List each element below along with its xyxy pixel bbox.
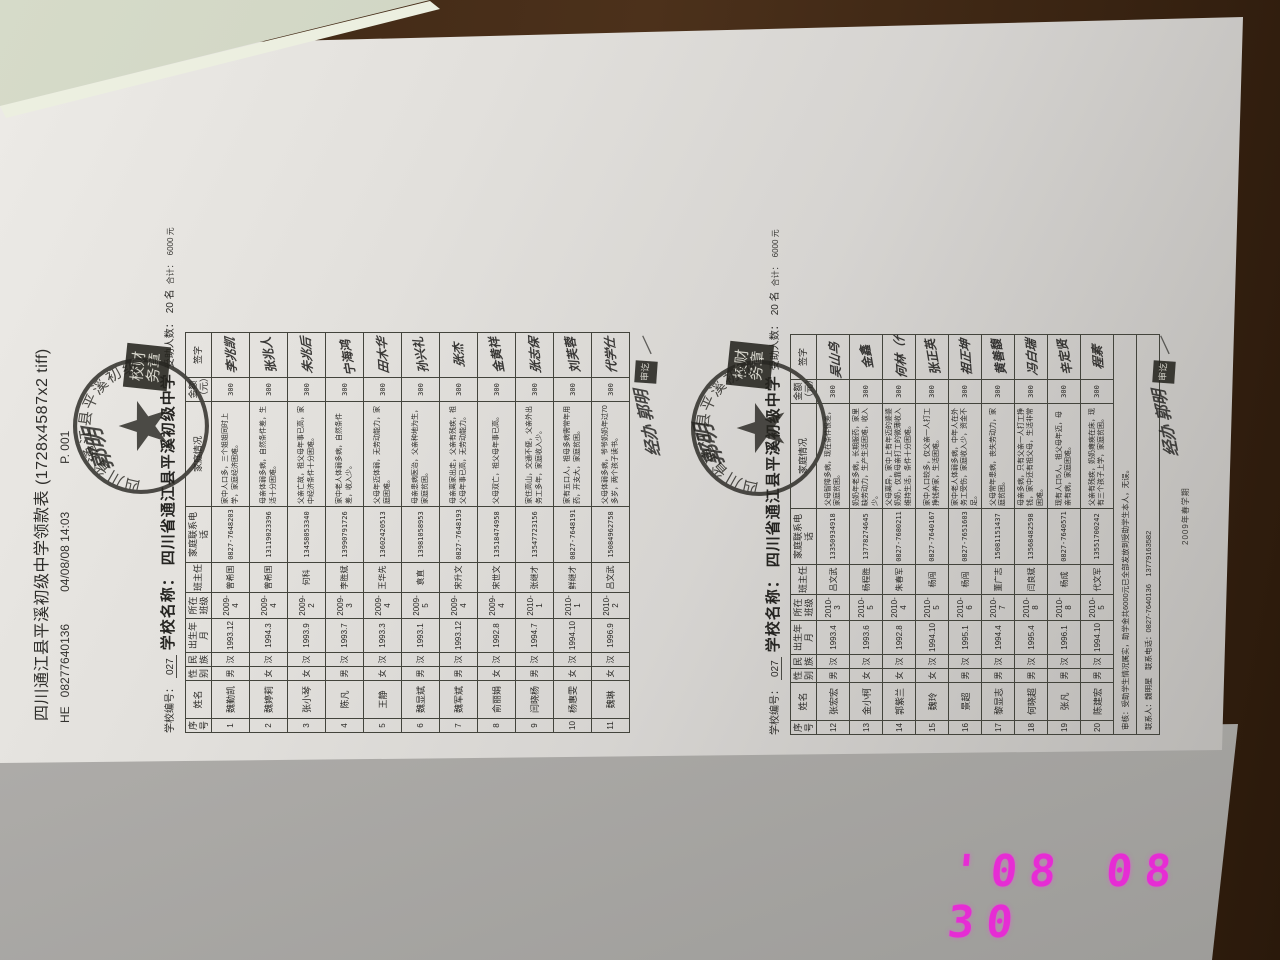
cell-klass: 2009-5 [402,593,440,619]
column-header: 家庭情况 [791,404,817,509]
cell-phone: 13990791726 [326,507,364,563]
cell-phone: 0827-7680211 [883,509,916,565]
photo-scene: 四川通江县平溪初级中学领款表 (1728x4587x2 tiff) HE 082… [0,0,1280,960]
pen-stroke: — [631,331,660,359]
cell-ethnic: 汉 [478,653,516,667]
cell-no: 8 [478,719,516,733]
cell-klass: 2010-8 [1048,595,1081,621]
cell-amount: 300 [288,378,326,402]
cell-signature: 朱兆后 [288,333,326,378]
cell-klass: 2010-5 [850,595,883,621]
cell-ethnic: 汉 [1015,655,1048,669]
cell-klass: 2010-5 [916,595,949,621]
column-header: 性别 [791,669,817,683]
cell-amount: 300 [592,378,630,402]
signature-handwriting: 祖正坤 [955,338,975,376]
cell-signature: 李兆凯 [212,333,250,378]
cell-phone: 0827-7640571 [1048,509,1081,565]
cell-amount: 300 [1048,380,1081,404]
table-row: 16景超男汉1995.12010-6杨闯0827-7651603家中老人体弱多病… [949,335,982,735]
cell-name: 魏婷莉 [250,681,288,719]
rectangular-seal-stamp: 校财务章 [726,341,774,389]
cell-signature: 张志保 [516,333,554,378]
table1-header-line: 学校编号：027 学校名称：四川省通江县平溪初级中学 受助人数：20 名 合计：… [157,227,178,733]
cell-sex: 男 [1015,669,1048,683]
cell-phone: 0827-7648203 [212,507,250,563]
cell-name: 张宏宏 [817,683,850,721]
cell-ethnic: 汉 [982,655,1015,669]
cell-no: 13 [850,721,883,735]
cell-name: 魏玲 [916,683,949,721]
cell-name: 景超 [949,683,982,721]
cell-ethnic: 汉 [212,653,250,667]
cell-teacher: 李胜斌 [326,563,364,593]
cell-teacher: 王华先 [364,563,402,593]
cell-no: 6 [402,719,440,733]
cell-teacher: 何科 [288,563,326,593]
signature-handwriting: 黄善馥 [987,338,1010,376]
school-no-label: 学校编号： [161,683,176,733]
signature-handwriting: 何林（代） [888,335,909,380]
column-header: 姓名 [186,681,212,719]
approval-signature-handwriting: 郭明 [74,427,121,471]
cell-signature: 金黄祥 [478,333,516,378]
cell-birth: 1993.12 [212,619,250,653]
cell-name: 何晓超 [1015,683,1048,721]
cell-situation: 父亲亡故，祖父母年事已高，家中经济条件十分困难。 [288,402,326,507]
cell-sex: 男 [1048,669,1081,683]
table-row: 12张宏宏男汉1993.42010-3吕文武13350934918父母智障多病，… [817,335,850,735]
cell-teacher: 宋世文 [478,563,516,593]
column-header: 民族 [791,655,817,669]
cell-amount: 300 [850,380,883,404]
cell-ethnic: 汉 [364,653,402,667]
cell-birth: 1992.8 [883,621,916,655]
cell-name: 郭紫兰 [883,683,916,721]
cell-no: 7 [440,719,478,733]
cell-sex: 男 [1081,669,1114,683]
table-row: 18何晓超男汉1995.42010-8闫良斌13568482598母亲多病，只有… [1015,335,1048,735]
cell-ethnic: 汉 [850,655,883,669]
table-row: 15魏玲女汉1994.102010-5杨闯0827-7640167家中人口较多，… [916,335,949,735]
cell-signature: 祖正坤 [949,335,982,380]
cell-ethnic: 汉 [1048,655,1081,669]
cell-birth: 1992.8 [478,619,516,653]
cell-situation: 母亲患病医治，父亲种地为生，家庭贫困。 [402,402,440,507]
cell-klass: 2010-4 [883,595,916,621]
cell-situation: 父母体弱多病，爷爷奶奶年过70多岁，两个孩子读书。 [592,402,630,507]
cell-birth: 1994.10 [1081,621,1114,655]
cell-birth: 1995.1 [949,621,982,655]
cell-no: 9 [516,719,554,733]
cell-amount: 300 [478,378,516,402]
table2-header-line: 学校编号：027 学校名称：四川省通江县平溪初级中学 受助人数：20 名 合计：… [762,229,783,735]
cell-klass: 2009-4 [212,593,250,619]
handwritten-note-after-table2: 经办 郭明 审讫 — [1152,335,1176,457]
camera-timestamp: '08 08 30 [946,846,1280,948]
cell-sex: 女 [850,669,883,683]
cell-phone: 13547723156 [516,507,554,563]
cell-teacher: 袁直 [402,563,440,593]
cell-situation: 奶奶年老多病，长期服药，家里缺劳动力，生产生活困难，收入少。 [850,404,883,509]
column-header: 所在班级 [791,595,817,621]
cell-no: 4 [326,719,364,733]
cell-phone: 13518474958 [478,507,516,563]
cell-name: 闫晓杨 [516,681,554,719]
cell-sex: 女 [478,667,516,681]
table-row: 5王静女汉1993.32009-4王华先13602420513父母年迈体弱，无劳… [364,333,402,733]
cell-phone: 13981058953 [402,507,440,563]
cell-situation: 母亲多病，只有父亲一人打工挣钱，家中还有祖父母，生活非常困难。 [1015,404,1048,509]
table-row: 2魏婷莉女汉1994.32009-4曾希国13119023396母亲体弱多病，自… [250,333,288,733]
cell-teacher: 代文军 [1081,565,1114,595]
table-row: 10杨惠雯女汉1994.102010-1鲜继才0827-7648191家有五口人… [554,333,592,733]
signature-handwriting: 吴山鸟（代） [822,335,844,380]
cell-no: 16 [949,721,982,735]
rectangular-seal-stamp: 校财务章 [123,343,171,391]
signature-handwriting: 张正英 [921,338,944,376]
cell-signature: 张兆人 [250,333,288,378]
cell-birth: 1993.1 [402,619,440,653]
fax-page-number: P. 001 [58,431,72,464]
cell-name: 黎显志 [982,683,1015,721]
cell-signature: 刘芙蓉 [554,333,592,378]
cell-amount: 300 [212,378,250,402]
cell-klass: 2010-1 [554,593,592,619]
cell-no: 12 [817,721,850,735]
cell-name: 俞丽娟 [478,681,516,719]
cell-sex: 女 [592,667,630,681]
cell-klass: 2010-1 [516,593,554,619]
cell-teacher: 闫良斌 [1015,565,1048,595]
column-header: 签字 [791,335,817,380]
signature-handwriting: 辛定贤 [1053,338,1076,376]
cell-signature: 代学仕 [592,333,630,378]
signature-handwriting: 张兆人 [257,336,280,374]
cell-name: 金小柯 [850,683,883,721]
cell-phone: 13119023396 [250,507,288,563]
cell-birth: 1993.9 [288,619,326,653]
cell-no: 20 [1081,721,1114,735]
cell-birth: 1993.12 [440,619,478,653]
signature-handwriting: 孙兴礼 [409,336,432,374]
signature-handwriting: 李兆凯 [221,336,241,374]
cell-signature: 黄善馥 [982,335,1015,380]
table-row: 1魏勤凯男汉1993.122009-4曾希国0827-7648203家中人口多，… [212,333,250,733]
cell-name: 陈建宏 [1081,683,1114,721]
cell-situation: 家中人口多，三个姐姐同时上学，家庭经济困难。 [212,402,250,507]
cell-amount: 300 [440,378,478,402]
cell-situation: 现有人口5人，祖父母年迈，母亲有病，家庭困难。 [1048,404,1081,509]
table-row: 19张凡男汉1996.12010-8杨成0827-7640571现有人口5人，祖… [1048,335,1081,735]
cell-birth: 1994.4 [982,621,1015,655]
cell-klass: 2010-5 [1081,595,1114,621]
cell-ethnic: 汉 [326,653,364,667]
total-label: 合计： [770,262,781,286]
cell-sex: 女 [250,667,288,681]
column-header: 序号 [791,721,817,735]
cell-amount: 300 [554,378,592,402]
recipients-value: 20 名 [161,289,176,313]
cell-amount: 300 [982,380,1015,404]
signature-handwriting: 刘芙蓉 [561,336,584,374]
cell-teacher: 董广志 [982,565,1015,595]
cell-ethnic: 汉 [402,653,440,667]
column-header: 序号 [186,719,212,733]
total-value: 6000 元 [770,229,781,257]
cell-ethnic: 汉 [440,653,478,667]
cell-situation: 家中老人体弱多病，中年人在外务工受伤，家庭收入少，资金不足。 [949,404,982,509]
table-row: 14郭紫兰女汉1992.82010-4朱春军0827-7680211父母离异，家… [883,335,916,735]
cell-amount: 300 [817,380,850,404]
cell-situation: 家中人口较多，仅父亲一人打工挣钱养家，生活困难。 [916,404,949,509]
approval-signature-handwriting: 郭明 [685,423,732,467]
signature-handwriting: 冯白瑞 [1021,338,1041,376]
cell-no: 3 [288,719,326,733]
cell-teacher: 张继才 [516,563,554,593]
cell-situation: 母亲体弱多病，自然条件差，生活十分困难。 [250,402,288,507]
cell-no: 5 [364,719,402,733]
cell-birth: 1996.9 [592,619,630,653]
cell-teacher: 鲜继才 [554,563,592,593]
cell-situation: 父母智障多病，现在条件很差，家庭贫困。 [817,404,850,509]
cell-sex: 女 [883,669,916,683]
cell-signature: 何林（代） [883,335,916,380]
school-name-value: 四川省通江县平溪初级中学 [157,373,178,565]
table-row: 13金小柯女汉1993.62010-5杨程胜13778274645奶奶年老多病，… [850,335,883,735]
cell-sex: 男 [817,669,850,683]
cell-birth: 1994.3 [250,619,288,653]
cell-teacher: 杨闯 [949,565,982,595]
cell-no: 11 [592,719,630,733]
cell-name: 魏琳 [592,681,630,719]
table-row: 20陈建宏男汉1994.102010-5代文军13551700242父亲有残疾，… [1081,335,1114,735]
cell-sex: 男 [440,667,478,681]
fax-header-title: 四川通江县平溪初级中学领款表 (1728x4587x2 tiff) [28,321,52,721]
pen-stroke: — [1149,331,1178,359]
cell-klass: 2009-4 [364,593,402,619]
cell-no: 19 [1048,721,1081,735]
column-header: 金额（元） [186,378,212,402]
cell-klass: 2010-6 [949,595,982,621]
cell-name: 杨惠雯 [554,681,592,719]
cell-phone: 13778274645 [850,509,883,565]
cell-name: 王静 [364,681,402,719]
signature-handwriting: 张志保 [525,336,545,374]
column-header: 出生年月 [186,619,212,653]
cell-situation: 父母年迈体弱，无劳动能力，家庭困难。 [364,402,402,507]
cell-ethnic: 汉 [916,655,949,669]
cell-teacher: 吕文武 [817,565,850,595]
column-header: 出生年月 [791,621,817,655]
cell-sex: 男 [949,669,982,683]
column-header: 家庭联系电话 [186,507,212,563]
cell-signature: 田木华 [364,333,402,378]
term-note: 2009年春学期 [1180,487,1191,545]
table-row: 7魏军斌男汉1993.122009-4宋升文0827-7648193母亲离家出走… [440,333,478,733]
cell-signature: 张杰 [440,333,478,378]
cell-sex: 男 [326,667,364,681]
signature-handwriting: 田木华 [373,336,393,374]
cell-signature: 冯白瑞 [1015,335,1048,380]
cell-birth: 1993.6 [850,621,883,655]
cell-phone: 13458053340 [288,507,326,563]
cell-name: 魏勤凯 [212,681,250,719]
roster-grid: 序号姓名性别民族出生年月所在班级班主任家庭联系电话家庭情况金额（元）签字12张宏… [790,334,1160,735]
column-header: 所在班级 [186,593,212,619]
cell-signature: 程素 [1081,335,1114,380]
cell-no: 18 [1015,721,1048,735]
cell-name: 张小琴 [288,681,326,719]
column-header: 签字 [186,333,212,378]
signature-handwriting: 金黄祥 [485,336,508,374]
table-row: 4陈凡男汉1993.72009-3李胜斌13990791726家中老人体弱多病，… [326,333,364,733]
cell-ethnic: 汉 [592,653,630,667]
cell-sex: 男 [402,667,440,681]
cell-ethnic: 汉 [883,655,916,669]
cell-situation: 家住高山，交通不便，父亲外出务工多年，家庭收入少。 [516,402,554,507]
cell-situation: 父亲有残疾，奶奶瘫痪在床，现有三个孩子上学，家庭贫困。 [1081,404,1114,509]
signature-handwriting: 代学仕 [601,336,621,374]
cell-situation: 父母常年患病，丧失劳动力，家庭贫困。 [982,404,1015,509]
cell-signature: 孙兴礼 [402,333,440,378]
cell-birth: 1996.1 [1048,621,1081,655]
table-row: 11魏琳女汉1996.92010-2吕文武15084962758父母体弱多病，爷… [592,333,630,733]
cell-sex: 男 [982,669,1015,683]
cell-phone: 0827-7648191 [554,507,592,563]
cell-birth: 1994.7 [516,619,554,653]
column-header: 班主任 [186,563,212,593]
cell-klass: 2009-4 [440,593,478,619]
cell-name: 张凡 [1048,683,1081,721]
cell-name: 陈凡 [326,681,364,719]
cell-amount: 300 [326,378,364,402]
school-no-value: 027 [165,655,177,678]
cell-signature: 金鑫 [850,335,883,380]
cell-signature: 张正英 [916,335,949,380]
cell-amount: 300 [916,380,949,404]
cell-amount: 300 [402,378,440,402]
cell-klass: 2010-7 [982,595,1015,621]
cell-phone: 13350934918 [817,509,850,565]
column-header: 性别 [186,667,212,681]
cell-amount: 300 [1015,380,1048,404]
cell-birth: 1993.3 [364,619,402,653]
cell-sex: 男 [516,667,554,681]
table-row: 17黎显志男汉1994.42010-7董广志15081151437父母常年患病，… [982,335,1015,735]
cell-phone: 0827-7640167 [916,509,949,565]
fax-number: 08277640136 [58,624,72,697]
cell-sex: 男 [212,667,250,681]
cell-ethnic: 汉 [1081,655,1114,669]
page-content: 四川通江县平溪初级中学领款表 (1728x4587x2 tiff) HE 082… [0,0,1245,755]
cell-klass: 2010-2 [592,593,630,619]
school-no-value: 027 [770,657,782,680]
cell-sex: 女 [554,667,592,681]
cell-klass: 2009-4 [250,593,288,619]
signature-handwriting: 宁海鸿（代） [330,333,359,377]
table-footer-row: 审核：受助学生情况属实，助学金共6000元已全部发放到受助学生本人，无误。 [1114,335,1137,735]
column-header: 民族 [186,653,212,667]
cell-situation: 家中老人体弱多病，自然条件差，收入少。 [326,402,364,507]
column-header: 姓名 [791,683,817,721]
cell-signature: 宁海鸿（代） [326,333,364,378]
cell-signature: 吴山鸟（代） [817,335,850,380]
table-row: 9闫晓杨男汉1994.72010-1张继才13547723156家住高山，交通不… [516,333,554,733]
roster-grid: 序号姓名性别民族出生年月所在班级班主任家庭联系电话家庭情况金额（元）签字1魏勤凯… [185,332,630,733]
cell-no: 15 [916,721,949,735]
column-header: 班主任 [791,565,817,595]
table-row: 8俞丽娟女汉1992.82009-4宋世文13518474958父母双亡，祖父母… [478,333,516,733]
cell-amount: 300 [1081,380,1114,404]
handwritten-note-between-tables: 经办 郭明 审讫 — [634,335,658,457]
cell-amount: 300 [250,378,288,402]
school-name-value: 四川省通江县平溪初级中学 [762,375,783,567]
school-name-label: 学校名称： [157,570,178,650]
table-row: 6魏显斌男汉1993.12009-5袁直13981058953母亲患病医治，父亲… [402,333,440,733]
recipients-value: 20 名 [766,291,781,315]
cell-signature: 辛定贤 [1048,335,1081,380]
cell-birth: 1993.4 [817,621,850,655]
cell-phone: 15081151437 [982,509,1015,565]
cell-no: 1 [212,719,250,733]
cell-teacher: 宋升文 [440,563,478,593]
cell-klass: 2009-3 [326,593,364,619]
fax-datetime: 04/08/08 14:03 [58,512,72,592]
cell-birth: 1994.10 [916,621,949,655]
cell-phone: 15084962758 [592,507,630,563]
cell-ethnic: 汉 [288,653,326,667]
signature-handwriting: 金鑫 [856,344,877,371]
cell-amount: 300 [364,378,402,402]
cell-ethnic: 汉 [250,653,288,667]
cell-klass: 2009-4 [478,593,516,619]
cell-sex: 女 [916,669,949,683]
cell-teacher: 杨成 [1048,565,1081,595]
cell-teacher: 朱春军 [883,565,916,595]
column-header: 金额（元） [791,380,817,404]
cell-klass: 2009-2 [288,593,326,619]
total-value: 6000 元 [165,227,176,255]
cell-situation: 父母离异，家中上有年迈的婆婆奶奶，仅靠母亲打工的微薄收入维持生活，条件十分困难。 [883,404,916,509]
cell-sex: 女 [288,667,326,681]
school-name-label: 学校名称： [762,572,783,652]
school-no-label: 学校编号： [766,685,781,735]
cell-ethnic: 汉 [949,655,982,669]
cell-no: 10 [554,719,592,733]
cell-teacher: 曾希国 [250,563,288,593]
cell-birth: 1993.7 [326,619,364,653]
roster-table-1: 学校编号：027 学校名称：四川省通江县平溪初级中学 受助人数：20 名 合计：… [95,331,635,733]
roster-table-2: 学校编号：027 学校名称：四川省通江县平溪初级中学 受助人数：20 名 合计：… [700,330,1200,735]
cell-ethnic: 汉 [516,653,554,667]
cell-name: 魏显斌 [402,681,440,719]
cell-klass: 2010-3 [817,595,850,621]
cell-teacher: 杨闯 [916,565,949,595]
cell-birth: 1995.4 [1015,621,1048,655]
cell-phone: 13568482598 [1015,509,1048,565]
signature-handwriting: 程素 [1088,344,1107,370]
signature-handwriting: 张杰 [449,342,468,368]
cell-sex: 女 [364,667,402,681]
cell-phone: 13602420513 [364,507,402,563]
signature-handwriting: 朱兆后 [297,336,317,374]
cell-amount: 300 [883,380,916,404]
fax-mark: HE [58,706,72,723]
cell-teacher: 曾希国 [212,563,250,593]
name-seal-stamp: 审讫 [634,360,657,383]
cell-no: 17 [982,721,1015,735]
